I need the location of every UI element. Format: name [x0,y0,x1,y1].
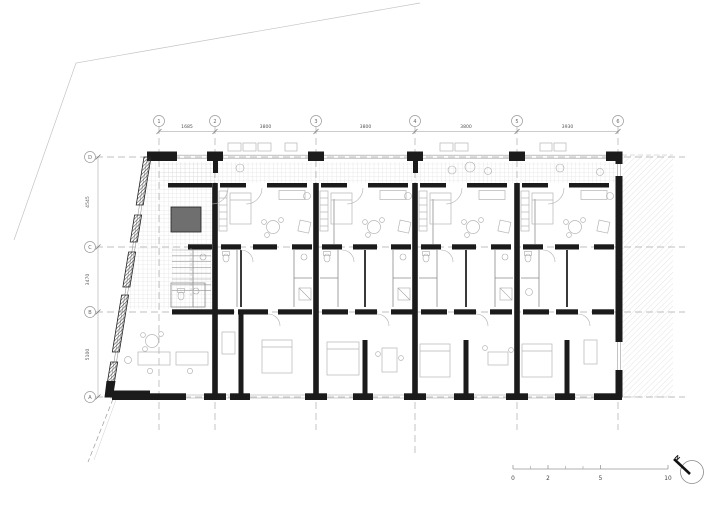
grid-bubble-row-c: C [85,242,96,253]
dimension-label: 3800 [360,124,372,130]
grid-col-label-3: 3 [314,119,317,125]
grid-row-label-a: A [88,395,92,401]
door-swings [212,188,590,326]
grid-bubble-col-1: 1 [154,116,165,127]
north-arrow: N [673,455,704,484]
grid-col-label-6: 6 [616,119,619,125]
grid-bubble-row-d: D [85,152,96,163]
dimension-label: 4545 [85,196,91,208]
grid-bubble-col-3: 3 [311,116,322,127]
dimension-string-top: 1685 3800 3800 3800 3930 [157,124,621,134]
furniture-lower-units [125,332,598,377]
grid-col-label-2: 2 [213,119,216,125]
grid-bubble-col-5: 5 [512,116,523,127]
scale-label-5: 5 [599,476,603,482]
scale-label-0: 0 [511,476,515,482]
grid-bubble-col-6: 6 [613,116,624,127]
elevator [171,207,201,232]
dimension-label: 3930 [562,124,574,130]
dimension-label: 3800 [460,124,472,130]
grid-col-label-4: 4 [413,119,416,125]
scale-label-2: 2 [546,476,550,482]
north-label: N [673,455,681,463]
grid-bubble-col-4: 4 [410,116,421,127]
grid-col-label-1: 1 [157,119,160,125]
grid-col-label-5: 5 [515,119,518,125]
scale-label-10: 10 [664,476,672,482]
grid-row-label-b: B [88,310,92,316]
floor-plan-canvas: 1 2 3 4 5 6 D C B A 1685 3800 3800 3800 … [0,0,724,512]
bathroom-fixtures [200,252,533,301]
dimension-label: 5100 [85,349,91,361]
scale-bar: 0 2 5 10 [511,465,672,482]
north-arrow-circle [681,461,704,484]
interior-walls [168,183,614,395]
dimension-label: 1685 [181,124,193,130]
grid-bubble-row-a: A [85,392,96,403]
floor-plan-page: 1 2 3 4 5 6 D C B A 1685 3800 3800 3800 … [0,0,724,512]
dimension-string-left: 4545 3470 5100 [85,155,101,400]
neighbour-building-hatch [622,155,673,397]
grid-bubble-row-b: B [85,307,96,318]
gallery-tiles [162,162,616,183]
grid-row-label-c: C [88,245,92,251]
grid-row-label-d: D [88,155,92,161]
grid-bubble-col-2: 2 [210,116,221,127]
dimension-label: 3800 [260,124,272,130]
dimension-label: 3470 [85,274,91,286]
